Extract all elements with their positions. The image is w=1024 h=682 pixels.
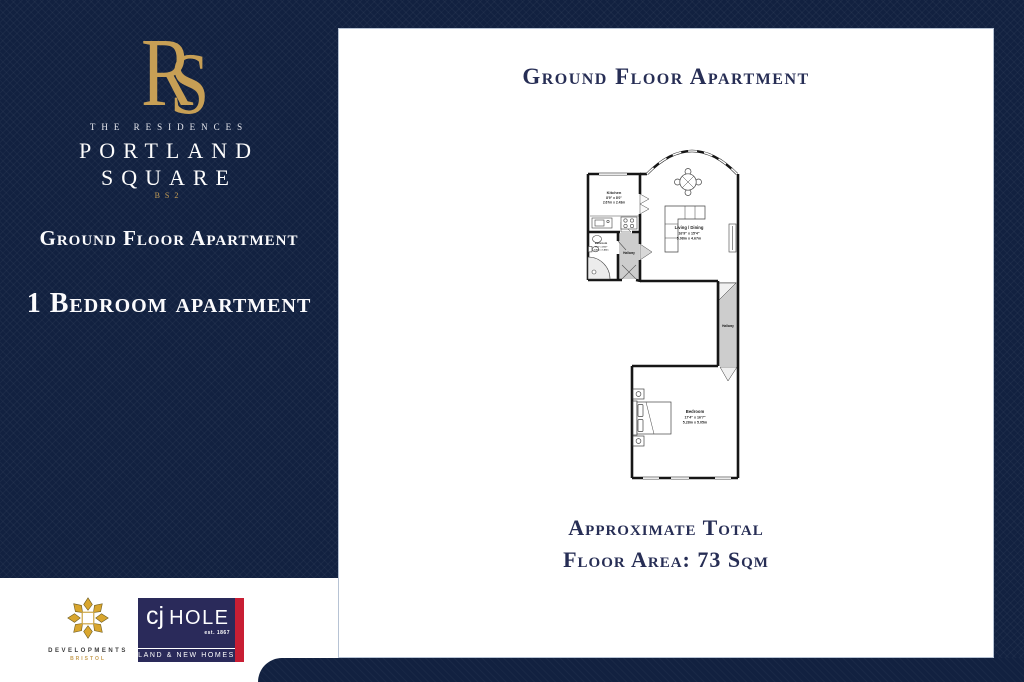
sidebar-type-label: 1 Bedroom apartment bbox=[0, 288, 338, 320]
developments-emblem-icon bbox=[59, 592, 117, 646]
left-sidebar: R S THE RESIDENCES PORTLAND SQUARE BS2 G… bbox=[0, 0, 338, 578]
bedroom-dims-metric: 5.28m x 5.05m bbox=[683, 421, 707, 425]
bathroom-dims-metric: 2.40m x 1.48m bbox=[594, 249, 609, 252]
floor-plan: Kitchen 8'9" x 8'0" 2.67m x 2.43m Living… bbox=[585, 144, 745, 480]
floor-area-line1: Approximate Total bbox=[338, 512, 994, 544]
hall-living-door-leaf bbox=[640, 244, 652, 260]
hallway-corridor-label: Hallway bbox=[722, 324, 734, 328]
brochure-page: R S THE RESIDENCES PORTLAND SQUARE BS2 G… bbox=[0, 0, 1024, 682]
bay-window-glazing bbox=[647, 151, 737, 174]
hallway-small-label: Hallway bbox=[623, 251, 635, 255]
bedroom-dims-imperial: 17'4" x 16'7" bbox=[684, 416, 705, 420]
cjhole-wordmark: cj HOLE bbox=[146, 604, 230, 629]
cjhole-est: est. 1867 bbox=[204, 630, 230, 636]
kitchen-label: Kitchen bbox=[607, 190, 622, 195]
cjhole-logo: cj HOLE est. 1867 LAND & NEW HOMES bbox=[138, 598, 244, 662]
kitchen-living-door-leaf1 bbox=[640, 194, 649, 204]
cjhole-name: HOLE bbox=[169, 608, 229, 628]
bedroom-label: Bedroom bbox=[686, 409, 705, 414]
cjhole-prefix: cj bbox=[146, 604, 164, 629]
developments-city-text: BRISTOL bbox=[42, 656, 134, 662]
living-dims-imperial: 16'9" x 15'4" bbox=[678, 232, 699, 236]
kitchen-dims-metric: 2.67m x 2.43m bbox=[603, 201, 625, 205]
bedroom-door bbox=[720, 367, 737, 381]
kitchen-dims-imperial: 8'9" x 8'0" bbox=[606, 196, 622, 200]
bathroom-label: Bathroom bbox=[595, 241, 608, 245]
page-title: Ground Floor Apartment bbox=[338, 64, 994, 90]
brand-postcode: BS2 bbox=[0, 191, 338, 200]
room-labels: Kitchen 8'9" x 8'0" 2.67m x 2.43m Living… bbox=[594, 190, 735, 425]
developments-bristol-logo: DEVELOPMENTS BRISTOL bbox=[42, 592, 134, 672]
living-dims-metric: 5.08m x 4.67m bbox=[677, 237, 701, 241]
brand-name-line1: PORTLAND bbox=[0, 138, 338, 164]
bathroom-dims-imperial: 7'10" x 4'10" bbox=[595, 246, 608, 249]
floor-plan-drawing: Kitchen 8'9" x 8'0" 2.67m x 2.43m Living… bbox=[585, 144, 745, 480]
floor-area-note: Approximate Total Floor Area: 73 Sqm bbox=[338, 512, 994, 576]
developments-text: DEVELOPMENTS bbox=[42, 648, 134, 654]
bed bbox=[633, 389, 671, 446]
kitchen-units bbox=[590, 216, 639, 229]
living-label: Living / Dining bbox=[675, 225, 704, 230]
sidebar-floor-label: Ground Floor Apartment bbox=[0, 226, 338, 251]
bottom-navy-bar bbox=[258, 658, 1024, 682]
cjhole-red-stripe bbox=[235, 598, 244, 662]
monogram-letter-s: S bbox=[170, 41, 209, 129]
kitchen-living-door-leaf2 bbox=[640, 204, 649, 214]
brand-name-line2: SQUARE bbox=[0, 165, 338, 191]
floor-area-line2: Floor Area: 73 Sqm bbox=[338, 544, 994, 576]
rs-monogram-logo: R S bbox=[0, 24, 338, 129]
cjhole-banner: LAND & NEW HOMES bbox=[138, 648, 244, 662]
brand-tagline: THE RESIDENCES bbox=[0, 122, 338, 132]
cjhole-main-block: cj HOLE est. 1867 bbox=[138, 598, 244, 648]
dining-table bbox=[675, 169, 702, 196]
living-wall-unit bbox=[729, 224, 736, 252]
